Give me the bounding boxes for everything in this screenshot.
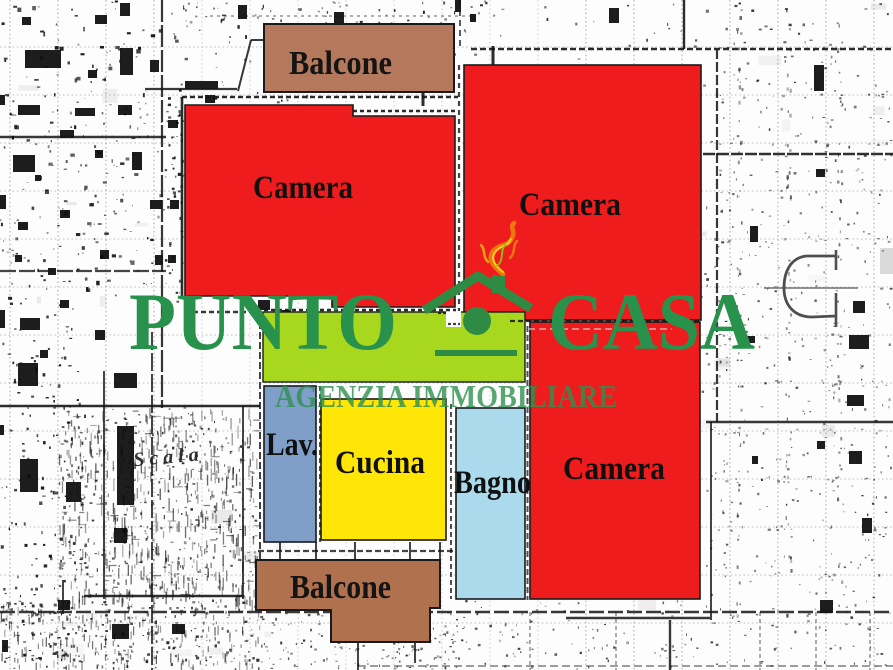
- svg-text:CASA: CASA: [548, 276, 755, 367]
- svg-text:AGENZIA IMMOBILIARE: AGENZIA IMMOBILIARE: [275, 378, 617, 414]
- svg-text:Balcone: Balcone: [289, 45, 392, 82]
- svg-text:Bagno: Bagno: [454, 465, 531, 501]
- svg-text:Camera: Camera: [253, 170, 353, 206]
- svg-text:Camera: Camera: [519, 187, 621, 223]
- svg-text:Camera: Camera: [563, 451, 665, 487]
- svg-text:PUNTO: PUNTO: [129, 276, 397, 367]
- svg-text:Balcone: Balcone: [290, 569, 391, 606]
- svg-text:Cucina: Cucina: [335, 445, 425, 481]
- svg-text:Lav.: Lav.: [266, 427, 318, 463]
